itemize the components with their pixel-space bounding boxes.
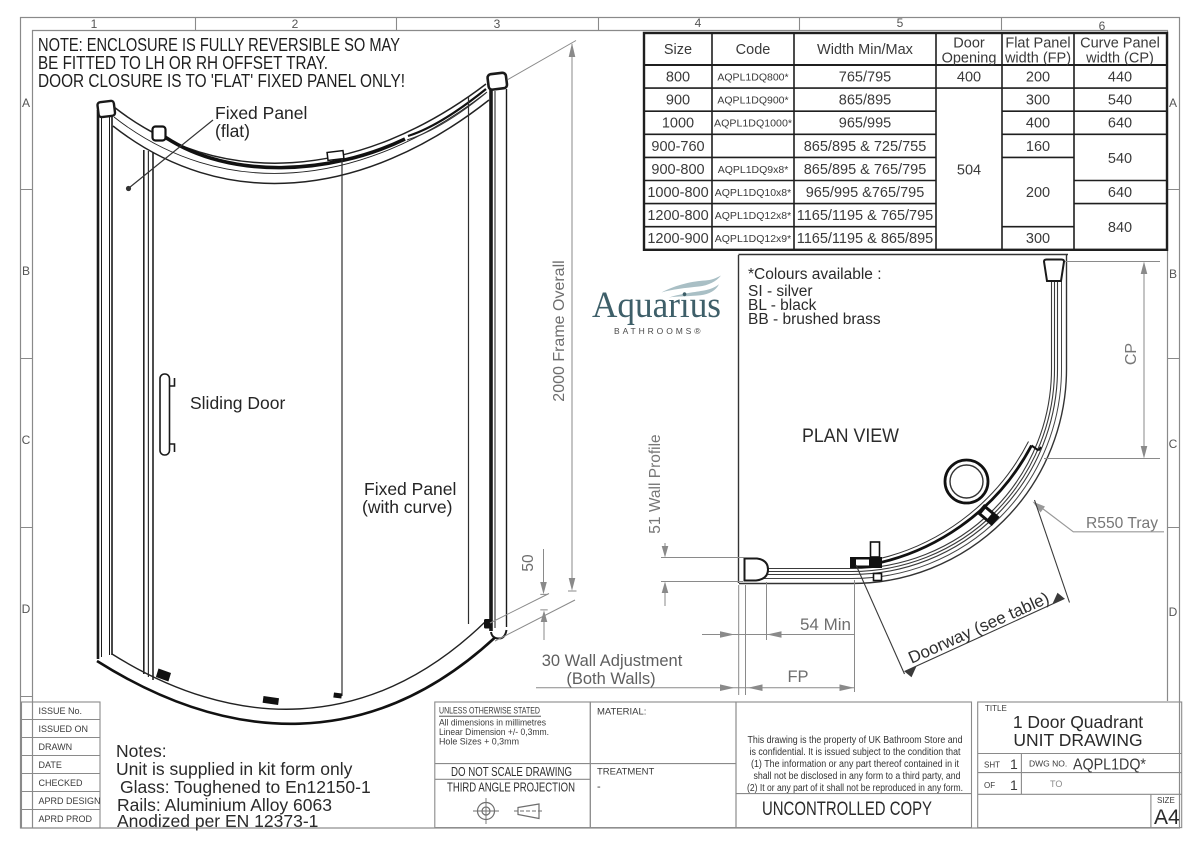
svg-text:2: 2 [292,17,299,31]
svg-text:1000: 1000 [662,116,694,132]
svg-text:OF: OF [984,781,995,790]
svg-text:400: 400 [957,70,981,86]
svg-text:300: 300 [1026,93,1050,109]
svg-text:ISSUE No.: ISSUE No. [39,706,83,716]
svg-text:AQPL1DQ*: AQPL1DQ* [1073,757,1146,774]
svg-text:B: B [1169,267,1177,281]
svg-text:TREATMENT: TREATMENT [597,767,655,778]
svg-text:UNCONTROLLED COPY: UNCONTROLLED COPY [762,798,932,820]
svg-text:54 Min: 54 Min [800,615,851,634]
svg-text:DO NOT SCALE DRAWING: DO NOT SCALE DRAWING [451,765,572,779]
svg-text:Aquarius: Aquarius [592,285,721,326]
svg-text:Fixed Panel: Fixed Panel [364,479,456,499]
svg-text:Curve Panel: Curve Panel [1080,36,1160,52]
svg-text:540: 540 [1108,151,1132,167]
svg-text:965/995 &765/795: 965/995 &765/795 [806,185,925,201]
svg-text:Anodized per EN 12373-1: Anodized per EN 12373-1 [117,811,318,831]
svg-text:ISSUED ON: ISSUED ON [39,724,89,734]
svg-text:300: 300 [1026,231,1050,247]
svg-text:1165/1195 & 765/795: 1165/1195 & 765/795 [797,208,934,224]
svg-text:This drawing is the property o: This drawing is the property of UK Bathr… [748,735,963,746]
svg-text:4: 4 [695,16,702,30]
svg-text:840: 840 [1108,220,1132,236]
svg-text:900-800: 900-800 [651,162,704,178]
svg-text:D: D [22,602,31,616]
svg-text:1000-800: 1000-800 [647,185,708,201]
svg-text:A: A [1169,96,1177,110]
svg-text:1: 1 [1010,756,1018,772]
svg-text:1200-900: 1200-900 [647,231,708,247]
svg-text:865/895: 865/895 [839,93,891,109]
svg-text:A4: A4 [1154,806,1180,829]
svg-text:51 Wall Profile: 51 Wall Profile [647,434,664,533]
svg-text:1: 1 [1010,777,1018,793]
svg-text:DATE: DATE [39,760,62,770]
svg-text:CP: CP [1123,343,1140,365]
svg-text:D: D [1169,605,1178,619]
svg-text:THIRD ANGLE PROJECTION: THIRD ANGLE PROJECTION [447,781,575,795]
svg-text:BATHROOMS®: BATHROOMS® [614,326,703,336]
svg-text:865/895 & 765/795: 865/895 & 765/795 [804,162,927,178]
svg-text:SHT: SHT [984,761,1000,770]
svg-text:CHECKED: CHECKED [39,778,84,788]
svg-text:965/995: 965/995 [839,116,891,132]
svg-text:UNIT DRAWING: UNIT DRAWING [1013,730,1142,750]
svg-text:TO: TO [1050,779,1062,789]
svg-text:504: 504 [957,163,981,179]
svg-text:R550 Tray: R550 Tray [1086,515,1158,532]
svg-text:APRD DESIGN: APRD DESIGN [39,796,101,806]
svg-text:30 Wall Adjustment: 30 Wall Adjustment [542,652,683,670]
svg-text:900-760: 900-760 [651,139,704,155]
svg-text:2000 Frame Overall: 2000 Frame Overall [551,260,568,401]
svg-text:Door: Door [953,36,985,52]
svg-text:width (FP): width (FP) [1004,51,1071,67]
svg-text:Fixed Panel: Fixed Panel [215,103,307,123]
svg-text:865/895 & 725/755: 865/895 & 725/755 [804,139,927,155]
svg-text:AQPL1DQ900*: AQPL1DQ900* [717,95,788,107]
svg-text:440: 440 [1108,70,1132,86]
svg-text:200: 200 [1026,70,1050,86]
svg-text:1: 1 [91,17,98,31]
svg-text:900: 900 [666,93,690,109]
svg-text:AQPL1DQ9x8*: AQPL1DQ9x8* [718,164,789,176]
svg-text:(with curve): (with curve) [362,497,452,517]
svg-text:1 Door Quadrant: 1 Door Quadrant [1013,712,1143,732]
svg-text:Notes:: Notes: [116,741,167,761]
svg-text:AQPL1DQ10x8*: AQPL1DQ10x8* [715,187,791,199]
svg-text:Opening: Opening [942,51,997,67]
svg-text:(1) The information or any par: (1) The information or any part thereof … [751,759,959,770]
svg-text:BB - brushed brass: BB - brushed brass [748,311,881,328]
svg-text:C: C [1169,437,1178,451]
svg-text:DOOR CLOSURE IS TO 'FLAT' FIXE: DOOR CLOSURE IS TO 'FLAT' FIXED PANEL ON… [38,71,405,91]
svg-text:AQPL1DQ1000*: AQPL1DQ1000* [714,118,792,130]
svg-text:Width Min/Max: Width Min/Max [817,42,914,58]
svg-text:width (CP): width (CP) [1085,51,1154,67]
svg-text:DWG NO.: DWG NO. [1029,759,1067,769]
svg-text:is confidential. It is issued: is confidential. It is issued subject to… [750,747,961,758]
svg-text:Size: Size [664,42,692,58]
svg-text:1200-800: 1200-800 [647,208,708,224]
svg-text:C: C [22,433,31,447]
svg-text:APRD PROD: APRD PROD [39,814,93,824]
svg-text:DRAWN: DRAWN [39,742,73,752]
svg-text:Unit is supplied in kit form o: Unit is supplied in kit form only [116,759,353,779]
svg-text:AQPL1DQ800*: AQPL1DQ800* [717,72,788,84]
svg-text:AQPL1DQ12x9*: AQPL1DQ12x9* [715,233,791,245]
svg-text:Hole Sizes + 0,3mm: Hole Sizes + 0,3mm [439,737,519,748]
svg-text:160: 160 [1026,139,1050,155]
svg-text:640: 640 [1108,116,1132,132]
svg-text:5: 5 [897,16,904,30]
svg-text:Glass: Toughened to En12150-1: Glass: Toughened to En12150-1 [120,777,371,797]
svg-text:640: 640 [1108,185,1132,201]
svg-text:B: B [22,264,30,278]
svg-text:TITLE: TITLE [985,704,1007,713]
svg-text:FP: FP [787,668,808,686]
svg-text:-: - [597,781,601,793]
svg-text:A: A [22,96,30,110]
svg-text:UNLESS OTHERWISE STATED: UNLESS OTHERWISE STATED [439,706,540,717]
svg-text:PLAN VIEW: PLAN VIEW [802,425,900,447]
svg-text:BE FITTED TO LH OR RH OFFSET T: BE FITTED TO LH OR RH OFFSET TRAY. [38,53,328,73]
svg-text:Flat Panel: Flat Panel [1005,36,1070,52]
svg-text:540: 540 [1108,93,1132,109]
svg-text:SIZE: SIZE [1157,796,1175,805]
svg-text:400: 400 [1026,116,1050,132]
svg-text:(flat): (flat) [215,121,250,141]
svg-text:6: 6 [1099,19,1106,33]
svg-text:3: 3 [494,17,501,31]
svg-text:shall not be disclosed in any: shall not be disclosed in any form to a … [754,771,961,782]
svg-text:(2) It or any part of it shall: (2) It or any part of it shall not be re… [747,783,963,794]
svg-text:MATERIAL:: MATERIAL: [597,707,646,718]
svg-text:*Colours available :: *Colours available : [748,266,882,283]
svg-text:AQPL1DQ12x8*: AQPL1DQ12x8* [715,210,791,222]
svg-text:765/795: 765/795 [839,70,891,86]
svg-text:(Both Walls): (Both Walls) [566,670,655,688]
svg-text:Sliding Door: Sliding Door [190,393,285,413]
svg-text:1165/1195 & 865/895: 1165/1195 & 865/895 [797,231,934,247]
svg-text:200: 200 [1026,185,1050,201]
svg-text:NOTE: ENCLOSURE IS FULLY REVER: NOTE: ENCLOSURE IS FULLY REVERSIBLE SO M… [38,35,400,55]
svg-text:50: 50 [520,554,537,572]
svg-text:Code: Code [736,42,771,58]
svg-text:800: 800 [666,70,690,86]
